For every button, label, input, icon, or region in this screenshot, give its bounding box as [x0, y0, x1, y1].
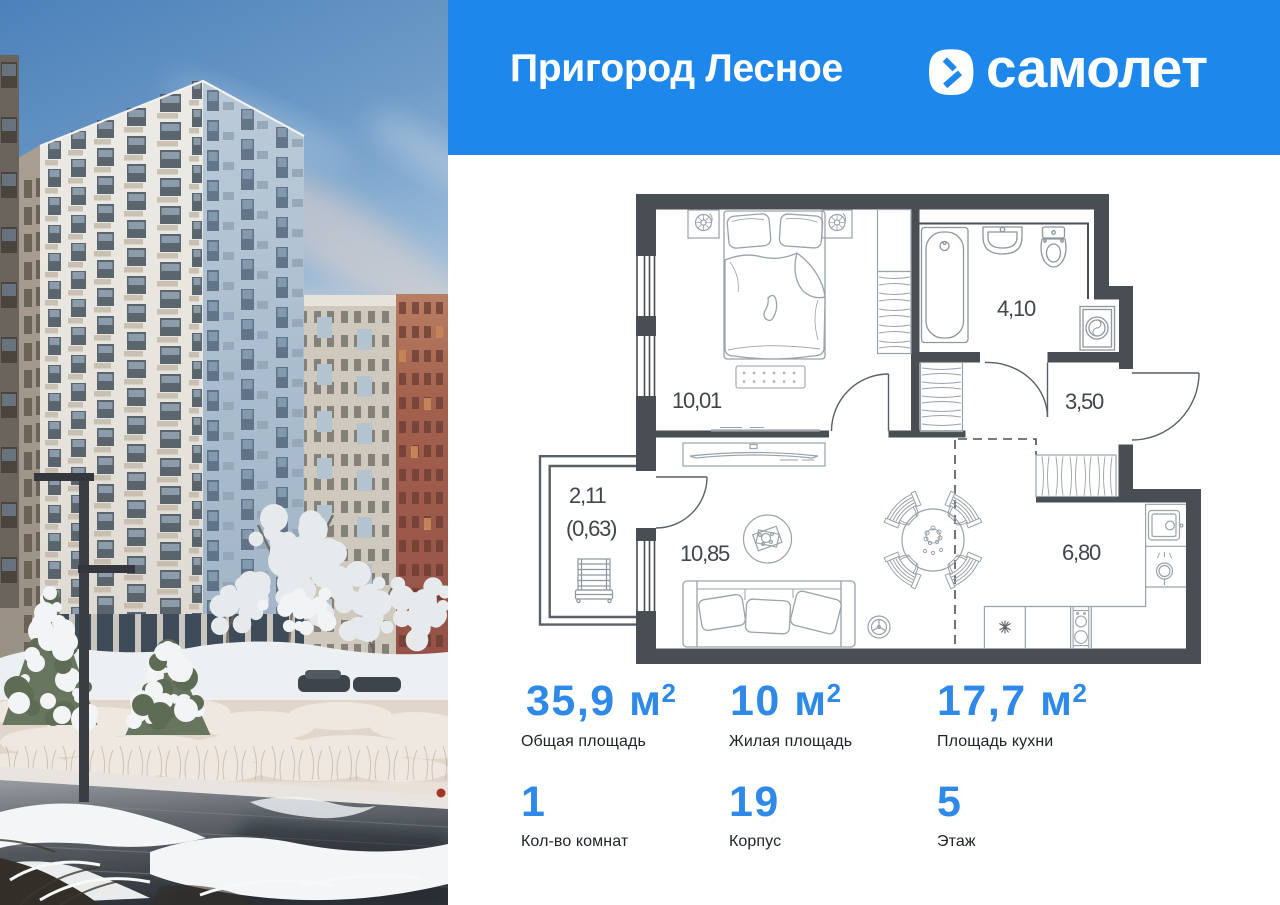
svg-text:10,01: 10,01	[672, 388, 722, 413]
svg-text:(0,63): (0,63)	[566, 516, 616, 541]
svg-text:4,10: 4,10	[997, 296, 1036, 321]
svg-text:10,85: 10,85	[680, 541, 730, 566]
svg-text:2,11: 2,11	[569, 483, 606, 508]
svg-text:3,50: 3,50	[1065, 389, 1104, 414]
svg-text:6,80: 6,80	[1062, 540, 1101, 565]
